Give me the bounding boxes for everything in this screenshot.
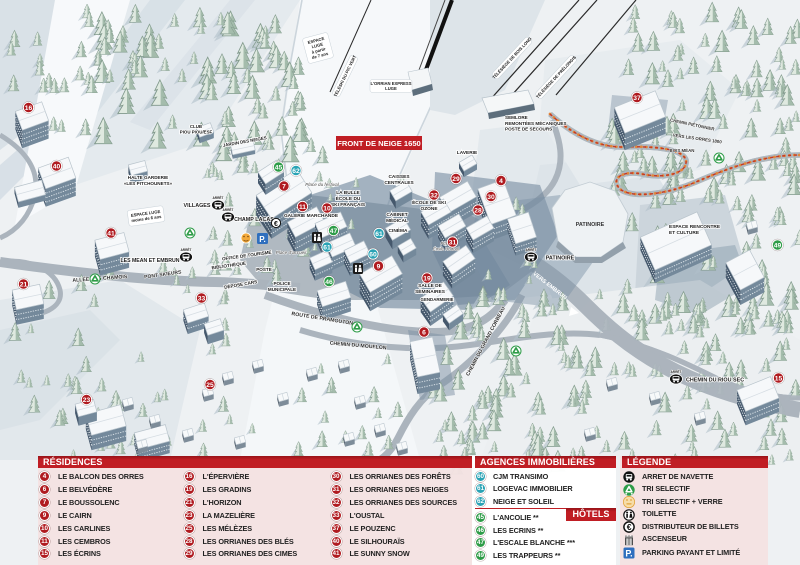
svg-text:ARRÊT: ARRÊT (223, 207, 234, 212)
svg-text:60: 60 (369, 251, 377, 258)
svg-text:HALTE GARDERIE: HALTE GARDERIE (128, 175, 169, 180)
svg-text:46: 46 (325, 279, 333, 286)
svg-text:LES MEAN ET EMBRUN: LES MEAN ET EMBRUN (120, 258, 179, 264)
svg-text:Place du festival: Place du festival (305, 182, 339, 187)
svg-text:P.: P. (259, 235, 266, 244)
svg-text:19: 19 (423, 275, 431, 282)
svg-text:41: 41 (107, 230, 115, 237)
svg-text:SALLE DE: SALLE DE (418, 283, 443, 289)
svg-text:CENTRALES: CENTRALES (384, 180, 414, 186)
svg-text:ARRÊT: ARRÊT (671, 369, 682, 374)
svg-text:ARRÊT: ARRÊT (181, 247, 192, 252)
svg-text:BOIS MÉAN: BOIS MÉAN (670, 148, 695, 153)
svg-text:62: 62 (292, 168, 300, 175)
svg-text:7: 7 (282, 183, 286, 190)
svg-text:33: 33 (198, 295, 206, 302)
svg-text:SKI FRANÇAIS: SKI FRANÇAIS (331, 202, 366, 208)
svg-text:POLICE: POLICE (273, 281, 290, 286)
svg-text:10: 10 (323, 205, 331, 212)
svg-text:POSTE DE SECOURS: POSTE DE SECOURS (505, 127, 552, 132)
svg-text:23: 23 (83, 397, 91, 404)
svg-text:15: 15 (775, 375, 783, 382)
svg-text:PIOU PIOU/ESF: PIOU PIOU/ESF (180, 130, 213, 135)
svg-text:Place d'accueil: Place d'accueil (276, 250, 307, 255)
svg-text:29: 29 (452, 176, 460, 183)
svg-text:CABINET: CABINET (386, 212, 407, 218)
svg-text:40: 40 (53, 163, 61, 170)
svg-text:LA BULLE: LA BULLE (336, 190, 360, 196)
svg-text:SEMLORE: SEMLORE (505, 115, 528, 120)
svg-text:ET CULTURE: ET CULTURE (669, 230, 700, 236)
svg-text:LUGE: LUGE (385, 86, 397, 91)
svg-text:VILLAGES: VILLAGES (184, 203, 211, 209)
svg-text:4: 4 (499, 178, 503, 185)
svg-text:28: 28 (474, 207, 482, 214)
svg-text:REMONTÉES MÉCANIQUES: REMONTÉES MÉCANIQUES (505, 119, 567, 126)
svg-text:ARRÊT: ARRÊT (526, 247, 537, 252)
svg-text:€: € (627, 522, 632, 532)
svg-text:CHEMIN DU RIOU SEC: CHEMIN DU RIOU SEC (686, 378, 744, 384)
svg-text:CLUB: CLUB (190, 124, 202, 129)
svg-text:61: 61 (375, 231, 383, 238)
svg-text:CAISSES: CAISSES (388, 174, 410, 180)
svg-text:25: 25 (206, 382, 214, 389)
svg-text:9: 9 (377, 263, 381, 270)
svg-text:30: 30 (487, 194, 495, 201)
svg-text:32: 32 (430, 192, 438, 199)
svg-text:47: 47 (330, 228, 338, 235)
svg-text:P.: P. (625, 548, 632, 558)
svg-text:37: 37 (633, 95, 641, 102)
svg-text:«LES PITCHOUNETS»: «LES PITCHOUNETS» (124, 181, 173, 186)
svg-text:ARRÊT: ARRÊT (213, 195, 224, 200)
svg-text:OZONE: OZONE (420, 206, 438, 212)
svg-text:CHAMP LACAS: CHAMP LACAS (234, 217, 274, 223)
svg-text:PATINOIRE: PATINOIRE (546, 256, 575, 262)
svg-text:MUNICIPALE: MUNICIPALE (268, 287, 296, 292)
svg-text:GALERIE MARCHANDE: GALERIE MARCHANDE (284, 213, 339, 219)
svg-text:ESPACE RENCONTRE: ESPACE RENCONTRE (669, 224, 721, 230)
svg-text:6: 6 (422, 329, 426, 336)
svg-text:11: 11 (299, 204, 306, 211)
svg-text:LAVERIE: LAVERIE (457, 150, 478, 156)
svg-text:49: 49 (774, 242, 782, 249)
svg-text:31: 31 (449, 239, 457, 246)
svg-text:61: 61 (323, 244, 331, 251)
svg-text:€: € (274, 221, 278, 228)
svg-text:PATINOIRE: PATINOIRE (576, 222, 605, 228)
svg-text:21: 21 (20, 281, 28, 288)
svg-text:POSTE: POSTE (256, 267, 272, 272)
svg-text:FRONT DE NEIGE 1650: FRONT DE NEIGE 1650 (337, 139, 421, 148)
svg-text:Émile Hodoul: Émile Hodoul (433, 247, 460, 252)
svg-text:GENDARMERIE: GENDARMERIE (421, 297, 454, 302)
svg-text:45: 45 (275, 164, 283, 171)
svg-text:16: 16 (25, 105, 33, 112)
